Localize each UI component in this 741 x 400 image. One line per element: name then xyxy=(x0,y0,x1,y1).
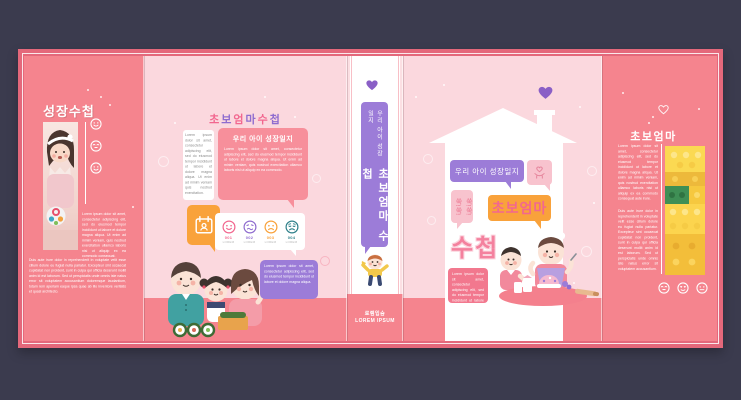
front-cover-panel: 우리 아이 성장일지 쑥!쑥! 쑥!쑥! 초보엄마 수첩 Lorem ipsum… xyxy=(403,56,602,341)
decor-dot xyxy=(579,106,581,108)
right-flap-paragraph-1: Lorem ipsum dolor sit amet, consectetur … xyxy=(618,144,658,206)
rating-item: 003 LOREM xyxy=(264,220,278,244)
fold-line xyxy=(403,56,404,341)
intro-bubble-title: 우리 아이 성장일지 xyxy=(224,134,302,144)
smile-face-icon xyxy=(90,118,102,130)
decor-dot xyxy=(87,89,89,91)
bubble-tail xyxy=(290,249,296,256)
heart-outline-icon xyxy=(657,103,670,115)
laugh-face-icon xyxy=(658,282,670,294)
jacket-panels: 성장수첩 xyxy=(24,56,717,341)
back-cover-title: 초보엄마수첩 xyxy=(144,111,347,127)
baby-photo xyxy=(43,122,78,250)
left-flap-paragraph-1: Lorem ipsum dolor sit amet, consectetur … xyxy=(82,212,126,257)
bubble-tail xyxy=(260,269,261,277)
main-title-bubble: 초보엄마 xyxy=(488,195,551,221)
spine-title: 초보엄마 수첩 xyxy=(359,168,391,247)
decor-dot xyxy=(109,104,111,106)
book-jacket-mockup: { "palette": { "background": "#3B3B4E", … xyxy=(0,0,741,400)
spine-title-ribbon: 우리 아이 성장일지 초보엄마 수첩 xyxy=(361,102,388,247)
fold-line xyxy=(602,56,603,341)
publisher-name-en: LOREM IPSUM xyxy=(347,318,403,324)
decor-dot xyxy=(174,122,176,124)
frown-face-icon xyxy=(264,220,278,234)
heart-eyes-face-icon xyxy=(677,282,689,294)
left-flap-title: 성장수첩 xyxy=(43,101,95,120)
decor-ring xyxy=(587,166,597,176)
intro-bubble: 우리 아이 성장일지 Lorem ipsum dolor sit amet, c… xyxy=(218,128,308,200)
spine-subtitle: 우리 아이 성장일지 xyxy=(366,110,384,163)
family-speech-bubble: Lorem ipsum dolor sit amet, consectetur … xyxy=(260,260,318,299)
decor-dot xyxy=(593,202,595,204)
quote-bubble: Lorem ipsum dolor sit amet, consectetur … xyxy=(183,130,214,200)
decor-ring xyxy=(427,216,436,225)
rating-item: 002 LOREM xyxy=(243,220,257,244)
back-cover-panel: 초보엄마수첩 Lorem ipsum dolor sit amet, conse… xyxy=(144,56,347,341)
rating-item: 001 LOREM xyxy=(222,220,236,244)
book-jacket: 성장수첩 xyxy=(18,49,723,348)
decor-ring xyxy=(581,246,592,257)
cry-face-icon xyxy=(285,220,299,234)
decor-dot xyxy=(415,96,417,98)
family-illustration xyxy=(166,250,266,340)
bubble-tail xyxy=(448,272,449,278)
bubble-tail xyxy=(187,199,193,200)
divider-line xyxy=(661,144,662,274)
decor-dot xyxy=(648,122,650,124)
fold-line xyxy=(347,56,348,341)
baking-illustration xyxy=(487,226,599,308)
front-body-bubble: Lorem ipsum dolor sit amet, consectetur … xyxy=(448,268,488,303)
bubble-tail xyxy=(287,199,294,208)
spine-panel: 우리 아이 성장일지 초보엄마 수첩 xyxy=(347,56,403,341)
decor-dot xyxy=(443,84,445,86)
right-flap-paragraph-2: Duis aute irure dolor in reprehenderit i… xyxy=(618,209,658,273)
decor-dot xyxy=(132,206,134,208)
decor-dot xyxy=(622,92,624,94)
left-flap-paragraph-2: Duis aute irure dolor in reprehenderit i… xyxy=(29,258,126,304)
neutral-face-icon xyxy=(696,282,708,294)
baby-photo-art xyxy=(43,122,78,250)
decor-ring xyxy=(158,156,169,167)
laugh-face-icon xyxy=(90,140,102,152)
right-flap-panel: 초보엄마 Lorem ipsum dolor sit amet, consect… xyxy=(602,56,717,341)
mood-rating-box: 001 LOREM 002 LOREM 003 LOREM 004 LOREM xyxy=(215,213,305,250)
decor-dot xyxy=(100,96,102,98)
growth-bubble: 쑥!쑥! 쑥!쑥! xyxy=(451,190,473,223)
lego-photo-art xyxy=(665,146,705,275)
lego-photo xyxy=(665,146,705,275)
decor-dot xyxy=(698,108,700,110)
bubble-tail xyxy=(505,181,511,189)
subtitle-bubble: 우리 아이 성장일지 xyxy=(450,160,524,182)
front-cover-title-line1: 초보엄마 xyxy=(492,198,548,218)
left-flap-panel: 성장수첩 xyxy=(24,56,144,341)
decor-ring xyxy=(320,256,330,266)
smile-face-icon xyxy=(222,220,236,234)
hand-heart-icon xyxy=(531,164,548,181)
decor-dot xyxy=(573,282,575,284)
divider-line xyxy=(85,122,86,204)
decor-ring xyxy=(312,174,321,183)
house-roof xyxy=(429,108,577,143)
publisher-name-kr: 로렘입숨 xyxy=(347,310,403,317)
rating-item: 004 LOREM xyxy=(285,220,299,244)
heart-icon xyxy=(365,78,379,91)
right-flap-title: 초보엄마 xyxy=(602,128,705,144)
spine-publisher-band: 로렘입숨 LOREM IPSUM xyxy=(347,294,403,341)
fold-line xyxy=(144,56,145,341)
heart-icon xyxy=(537,84,554,100)
calendar-icon xyxy=(193,214,215,236)
bubble-tail xyxy=(544,184,550,191)
uneasy-face-icon xyxy=(243,220,257,234)
hand-heart-bubble xyxy=(527,160,552,185)
waving-kid-illustration xyxy=(360,252,390,286)
smile-face-icon xyxy=(90,162,102,174)
decor-dot xyxy=(202,184,204,186)
decor-dot xyxy=(294,116,296,118)
decor-dot xyxy=(264,96,266,98)
decor-ring xyxy=(423,154,433,164)
decor-dot xyxy=(652,116,654,118)
